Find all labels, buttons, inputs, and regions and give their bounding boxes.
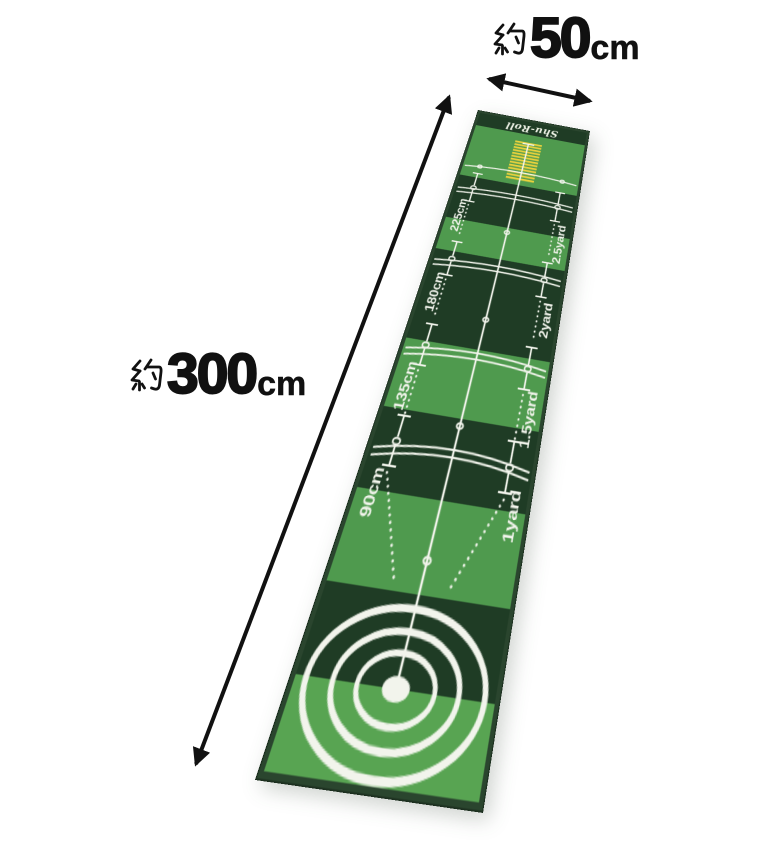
- approx-kanji-icon: [128, 358, 164, 398]
- approx-kanji-icon: [491, 22, 527, 62]
- length-value: 300: [167, 346, 256, 403]
- putting-mat: Shu-Roll: [255, 110, 590, 813]
- width-dimension-label: 50 cm: [491, 10, 640, 67]
- length-unit: cm: [257, 367, 306, 401]
- width-value: 50: [530, 10, 589, 67]
- mat-shadow-wrapper: Shu-Roll: [0, 0, 780, 850]
- length-dimension-label: 300 cm: [128, 346, 306, 403]
- mat-artwork: Shu-Roll: [255, 110, 590, 813]
- product-dimension-image: { "annotations": { "width": { "approx": …: [0, 0, 780, 850]
- width-unit: cm: [590, 31, 639, 65]
- stage: Shu-Roll: [0, 0, 780, 850]
